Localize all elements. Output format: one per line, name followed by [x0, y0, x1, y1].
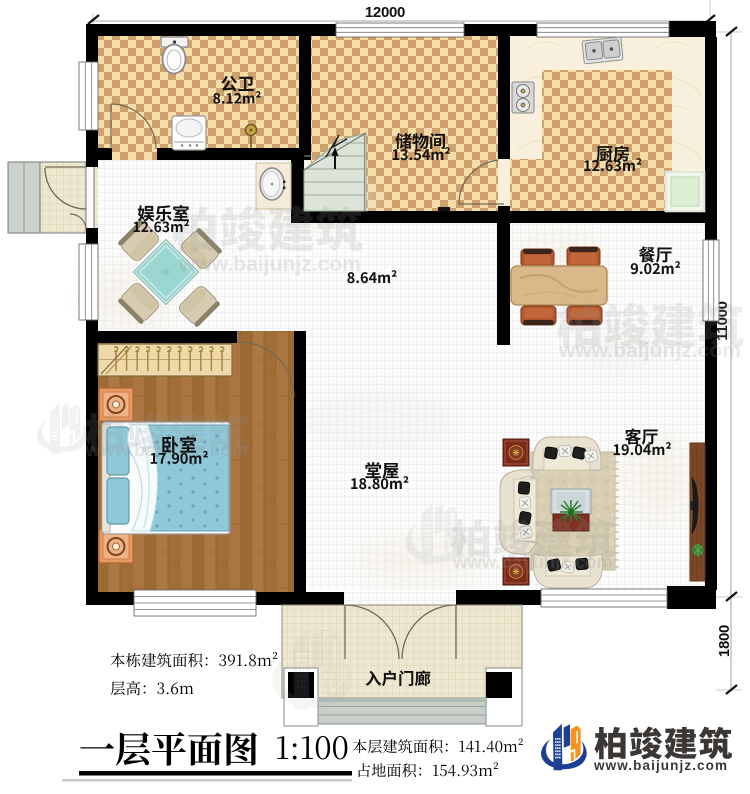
svg-text:www.baijunjz.com: www.baijunjz.com	[593, 758, 728, 773]
svg-text:12000: 12000	[365, 4, 405, 21]
svg-text:www.baijunjz.com: www.baijunjz.com	[452, 552, 613, 572]
svg-text:1800: 1800	[716, 625, 733, 657]
svg-text:www.baijunjz.com: www.baijunjz.com	[178, 253, 361, 276]
svg-text:www.baijunjz.com: www.baijunjz.com	[558, 340, 741, 362]
